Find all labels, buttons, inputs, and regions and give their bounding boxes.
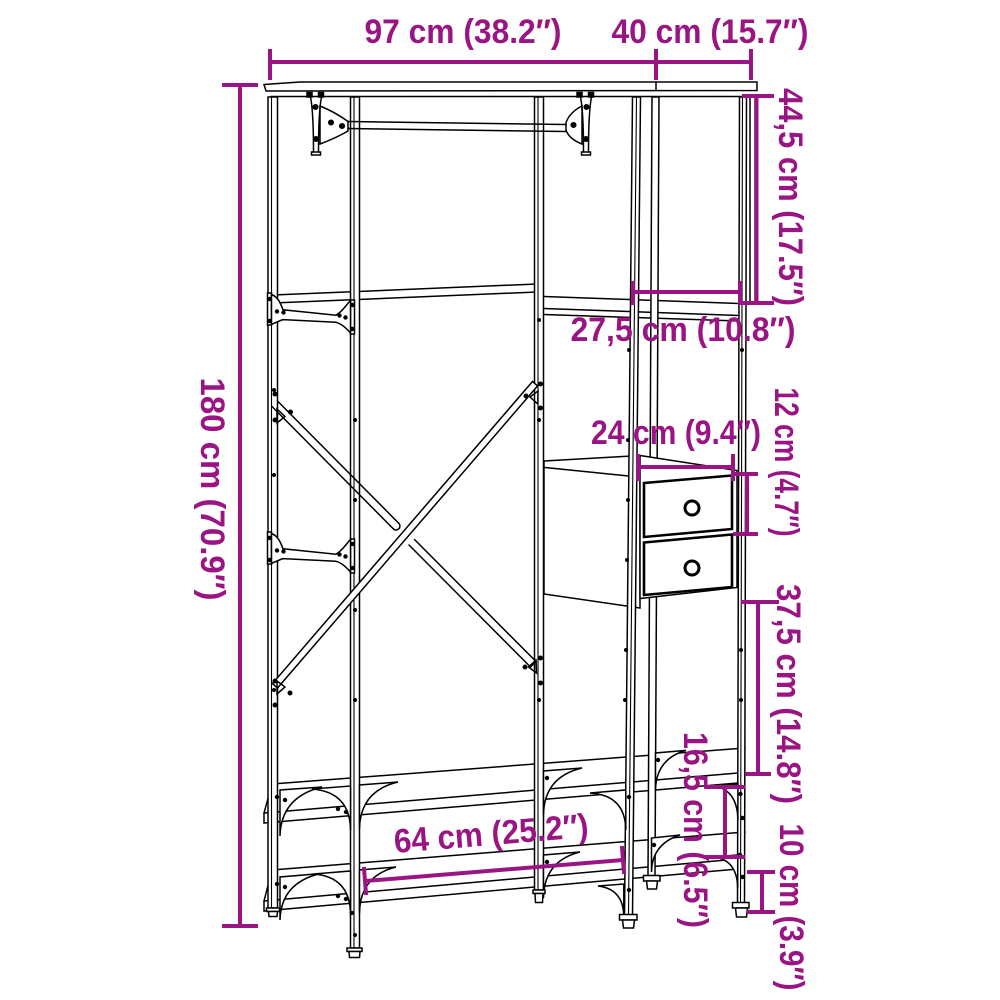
svg-text:12 cm (4.7″): 12 cm (4.7″) <box>767 388 805 537</box>
svg-text:37,5 cm (14.8″): 37,5 cm (14.8″) <box>769 584 807 804</box>
svg-text:40 cm (15.7″): 40 cm (15.7″) <box>612 13 809 51</box>
svg-text:27,5 cm (10.8″): 27,5 cm (10.8″) <box>571 311 796 349</box>
svg-text:97 cm (38.2″): 97 cm (38.2″) <box>365 13 562 51</box>
svg-text:44,5 cm (17.5″): 44,5 cm (17.5″) <box>771 88 809 306</box>
svg-text:10 cm (3.9″): 10 cm (3.9″) <box>772 824 810 991</box>
svg-text:24 cm (9.4″): 24 cm (9.4″) <box>591 414 761 452</box>
svg-text:180 cm (70.9″): 180 cm (70.9″) <box>193 378 231 601</box>
svg-text:16,5 cm (6.5″): 16,5 cm (6.5″) <box>676 732 714 928</box>
